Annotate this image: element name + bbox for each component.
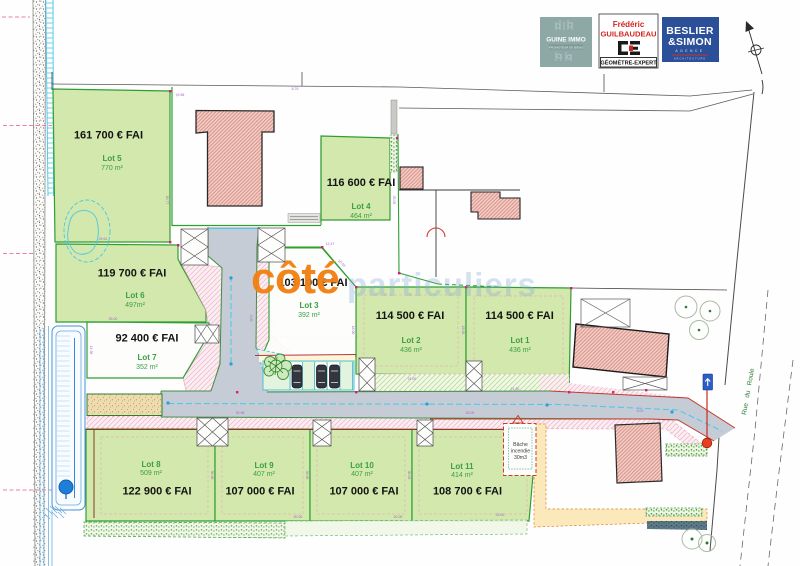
svg-text:12.47: 12.47 [326,242,335,246]
svg-text:107 000 € FAI: 107 000 € FAI [329,486,398,498]
svg-text:PROMOTEUR DE BIENS: PROMOTEUR DE BIENS [549,46,583,50]
svg-text:122 900 € FAI: 122 900 € FAI [122,486,191,498]
svg-text:ARCHITECTURE: ARCHITECTURE [674,57,706,61]
svg-text:Lot 9: Lot 9 [254,461,274,470]
svg-text:414 m²: 414 m² [451,472,473,479]
svg-text:36.05: 36.05 [305,471,309,480]
svg-text:108 700 € FAI: 108 700 € FAI [433,486,502,498]
svg-text:20.00: 20.00 [294,515,303,519]
svg-text:770 m²: 770 m² [101,165,123,172]
svg-text:436 m²: 436 m² [509,347,531,354]
svg-text:6.00: 6.00 [637,409,644,413]
svg-text:Lot 10: Lot 10 [350,461,374,470]
svg-text:30m3: 30m3 [514,455,527,461]
svg-text:GUILBAUDEAU: GUILBAUDEAU [600,30,657,39]
svg-text:Frédéric: Frédéric [613,20,645,29]
svg-text:119 700 € FAI: 119 700 € FAI [98,268,167,280]
svg-text:25.03: 25.03 [392,196,396,205]
svg-text:8.76: 8.76 [292,87,299,91]
svg-text:AGENCE: AGENCE [675,49,704,53]
svg-text:464 m²: 464 m² [350,213,372,220]
svg-text:114 500 € FAI: 114 500 € FAI [485,310,554,322]
svg-text:92 400 € FAI: 92 400 € FAI [116,333,179,345]
svg-text:21.00: 21.00 [408,377,417,381]
svg-text:3.05: 3.05 [249,315,253,322]
svg-text:Lot 7: Lot 7 [137,353,157,362]
svg-text:497m²: 497m² [125,302,146,309]
svg-text:GUINE IMMO: GUINE IMMO [546,37,585,44]
svg-text:Bâche: Bâche [513,442,528,448]
svg-text:161 700 € FAI: 161 700 € FAI [74,130,143,142]
svg-text:19.98: 19.98 [176,93,185,97]
svg-text:GÉOMÈTRE-EXPERT: GÉOMÈTRE-EXPERT [600,59,657,67]
svg-text:116 600 € FAI: 116 600 € FAI [327,177,396,189]
svg-text:Lot 4: Lot 4 [351,202,371,211]
svg-text:Lot 5: Lot 5 [102,154,122,163]
svg-text:&SIMON: &SIMON [668,36,712,48]
svg-text:29.61: 29.61 [99,237,108,241]
svg-text:436 m²: 436 m² [400,347,422,354]
svg-text:Lot 11: Lot 11 [450,462,474,471]
svg-text:23.00: 23.00 [496,513,505,517]
svg-text:14.38: 14.38 [89,346,93,355]
svg-text:36.06: 36.06 [210,471,214,480]
svg-text:côté: côté [251,254,339,303]
svg-text:21.50: 21.50 [511,387,520,391]
svg-text:Lot 8: Lot 8 [141,460,161,469]
svg-text:407 m²: 407 m² [253,471,275,478]
svg-text:18.00: 18.00 [351,326,355,335]
svg-text:26.00: 26.00 [109,317,118,321]
svg-text:30.00: 30.00 [466,411,475,415]
svg-text:incendie: incendie [511,449,530,455]
svg-text:352 m²: 352 m² [136,364,158,371]
svg-text:392 m²: 392 m² [298,312,320,319]
svg-text:407 m²: 407 m² [351,471,373,478]
svg-text:107 000 € FAI: 107 000 € FAI [225,486,294,498]
svg-text:particuliers: particuliers [347,266,537,303]
svg-text:36.03: 36.03 [407,471,411,480]
svg-text:30.98: 30.98 [236,411,245,415]
svg-text:30.77: 30.77 [165,196,169,205]
svg-text:114 500 € FAI: 114 500 € FAI [376,310,445,322]
svg-text:Lot 2: Lot 2 [401,336,421,345]
svg-text:Lot 1: Lot 1 [510,336,530,345]
svg-text:20.00: 20.00 [394,515,403,519]
svg-text:Lot 6: Lot 6 [125,291,145,300]
svg-text:18.00: 18.00 [461,326,465,335]
svg-text:509 m²: 509 m² [140,470,162,477]
